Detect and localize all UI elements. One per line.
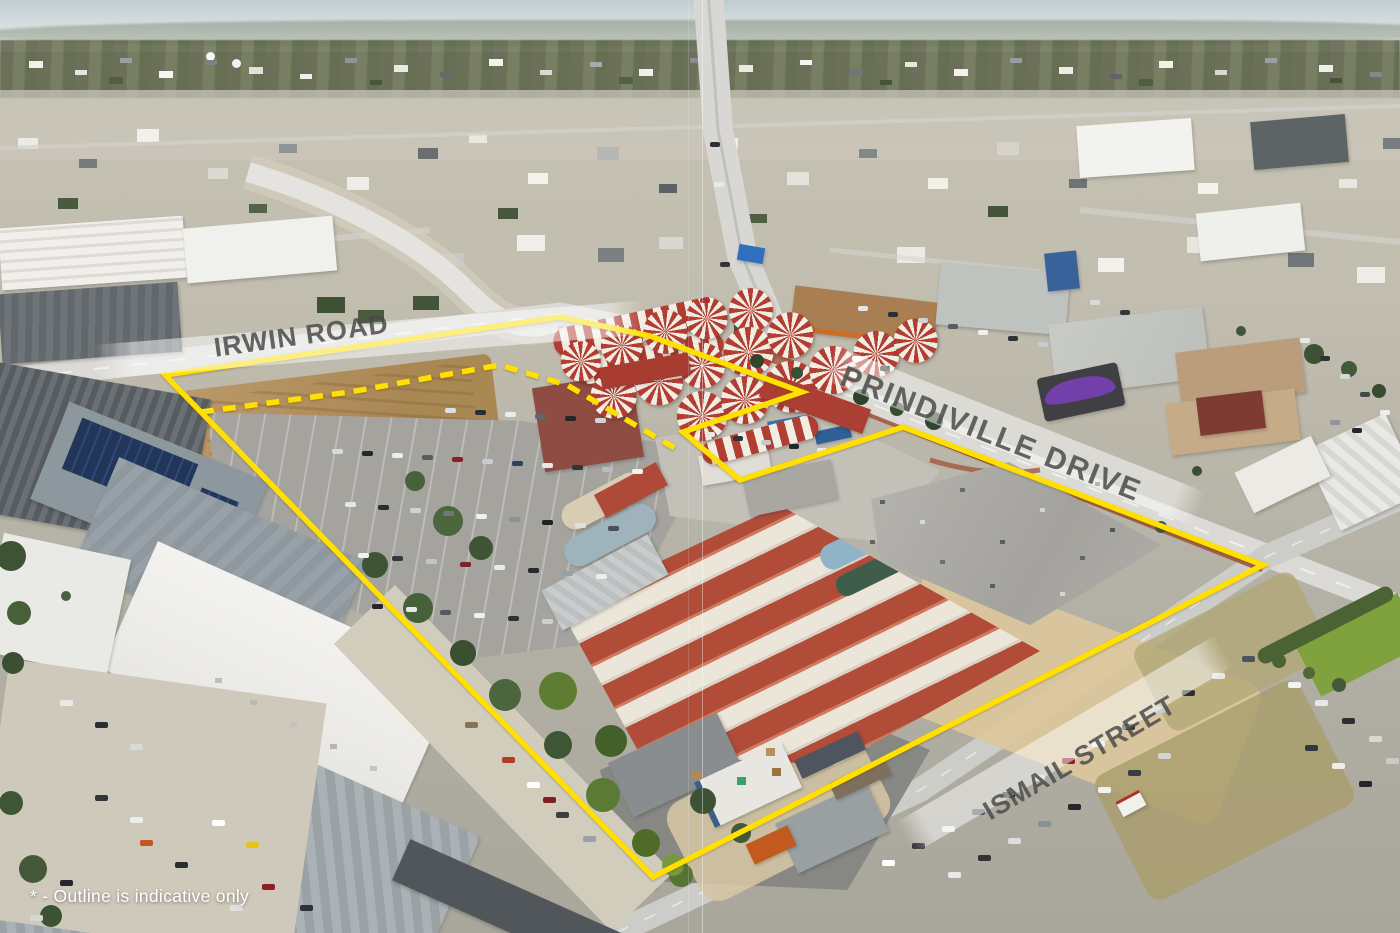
boundary-dashed-line <box>201 365 678 450</box>
disclaimer-text: * - Outline is indicative only <box>30 886 249 907</box>
boundary-solid-outline <box>165 317 1263 877</box>
aerial-photo: IRWIN ROAD PRINDIVILLE DRIVE ISMAIL STRE… <box>0 0 1400 933</box>
boundary-outline-svg <box>0 0 1400 933</box>
